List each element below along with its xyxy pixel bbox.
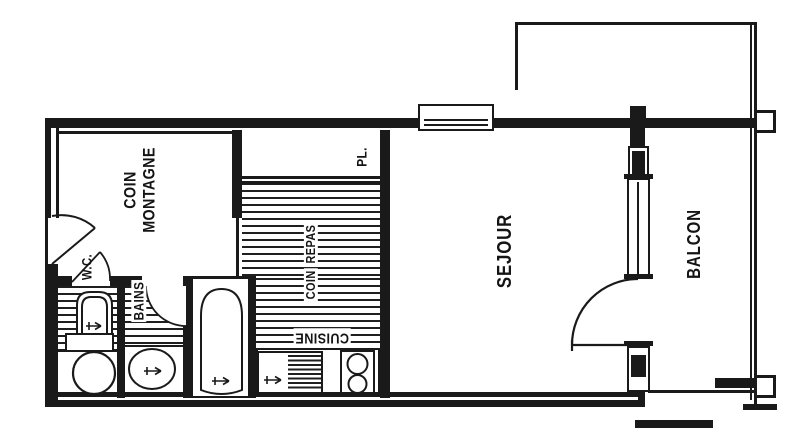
burner-1 [348, 354, 368, 374]
burner-2 [349, 375, 367, 393]
coin-repas-line2: REPAS [304, 223, 318, 265]
coin-montagne-label: COIN MONTAGNE [121, 147, 158, 233]
bains-label: BAINS [131, 280, 146, 322]
placard-label: PL. [354, 147, 369, 167]
stove [341, 351, 374, 395]
kitchen-sink-arrow [264, 376, 281, 384]
balcon-label-text: BALCON [684, 209, 704, 279]
coin-repas-line1: COIN [304, 269, 318, 301]
balcony-door [572, 279, 638, 351]
bains-label-text: BAINS [131, 280, 146, 322]
kitchen-sink [258, 352, 322, 393]
washbasin [129, 349, 175, 389]
balcon-label: BALCON [685, 209, 705, 279]
placard-label-text: PL. [353, 147, 369, 167]
cuisine-label-text: CUISINE [293, 329, 350, 346]
coin-montagne-line1: COIN [121, 147, 140, 233]
washing-machine [73, 352, 115, 394]
toilet [66, 292, 113, 351]
kitchen-sink-outline [258, 352, 322, 393]
bathtub [192, 278, 249, 397]
wc-label-text: W.C. [80, 254, 95, 280]
washbasin-bowl [129, 349, 175, 389]
wc-door-arc [100, 252, 110, 281]
coin-repas-label: COIN REPAS [304, 223, 318, 301]
toilet-cistern [66, 334, 113, 351]
coin-montagne-line2: MONTAGNE [140, 147, 159, 233]
wc-label: W.C. [81, 254, 96, 280]
balcony-door-arc [572, 279, 638, 345]
floor-plan: COIN MONTAGNE W.C. BAINS COIN REPAS CUIS… [0, 0, 800, 430]
bains-door [146, 286, 186, 326]
sejour-label-text: SEJOUR [494, 214, 516, 288]
entrance-door-arc [52, 215, 95, 228]
sejour-label: SEJOUR [494, 214, 516, 288]
cuisine-label: CUISINE [293, 329, 350, 346]
fixtures-layer [0, 0, 800, 430]
